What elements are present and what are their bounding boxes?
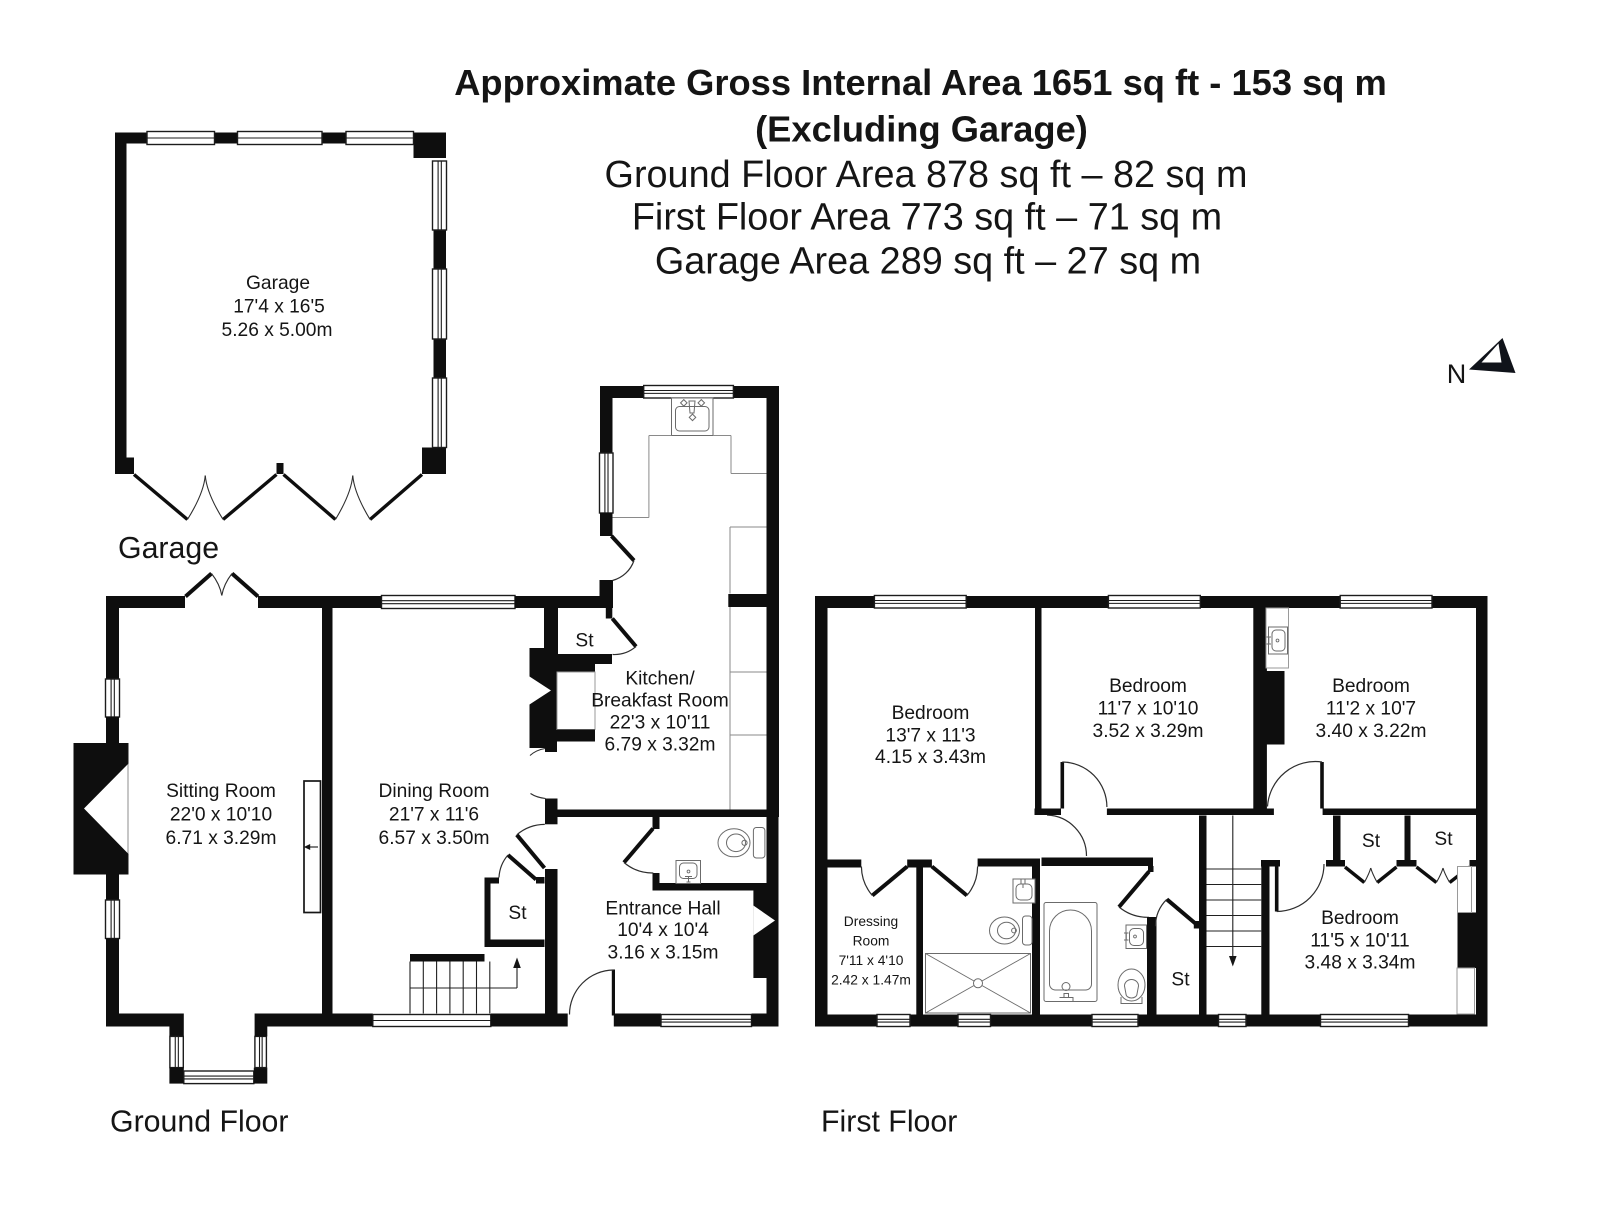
svg-text:Dressing: Dressing: [844, 914, 898, 929]
svg-text:Garage Area 289 sq ft – 27 sq: Garage Area 289 sq ft – 27 sq m: [655, 241, 1201, 283]
svg-text:First Floor Area 773 sq ft – 7: First Floor Area 773 sq ft – 71 sq m: [632, 197, 1222, 239]
svg-text:6.57 x 3.50m: 6.57 x 3.50m: [379, 828, 490, 849]
svg-text:7'11 x 4'10: 7'11 x 4'10: [839, 953, 904, 968]
svg-text:3.16 x 3.15m: 3.16 x 3.15m: [608, 943, 719, 964]
svg-text:St: St: [575, 631, 594, 652]
svg-text:22'3 x 10'11: 22'3 x 10'11: [610, 713, 711, 734]
svg-text:Approximate Gross Internal Are: Approximate Gross Internal Area 1651 sq …: [454, 62, 1387, 103]
svg-text:11'7 x 10'10: 11'7 x 10'10: [1098, 699, 1199, 720]
svg-text:First Floor: First Floor: [821, 1106, 957, 1139]
svg-text:Kitchen/: Kitchen/: [625, 669, 695, 690]
svg-text:2.42 x 1.47m: 2.42 x 1.47m: [831, 973, 911, 988]
svg-text:Room: Room: [853, 934, 890, 949]
svg-text:Ground Floor: Ground Floor: [110, 1106, 289, 1139]
svg-text:St: St: [1362, 831, 1381, 852]
svg-text:Dining Room: Dining Room: [379, 781, 490, 802]
svg-text:13'7 x 11'3: 13'7 x 11'3: [885, 726, 975, 747]
svg-text:Garage: Garage: [246, 273, 310, 294]
svg-text:6.79 x 3.32m: 6.79 x 3.32m: [605, 735, 716, 756]
svg-text:3.40 x 3.22m: 3.40 x 3.22m: [1316, 721, 1427, 742]
svg-text:4.15 x 3.43m: 4.15 x 3.43m: [875, 747, 986, 768]
svg-text:Garage: Garage: [118, 532, 219, 565]
svg-text:3.48 x 3.34m: 3.48 x 3.34m: [1305, 952, 1416, 973]
svg-text:Bedroom: Bedroom: [1332, 676, 1410, 697]
svg-text:Bedroom: Bedroom: [1321, 908, 1399, 929]
svg-text:Bedroom: Bedroom: [1109, 676, 1187, 697]
svg-text:10'4 x 10'4: 10'4 x 10'4: [617, 920, 709, 941]
svg-text:6.71 x 3.29m: 6.71 x 3.29m: [166, 828, 277, 849]
svg-text:St: St: [508, 903, 527, 924]
svg-text:5.26 x 5.00m: 5.26 x 5.00m: [222, 320, 333, 341]
svg-text:11'5 x 10'11: 11'5 x 10'11: [1310, 930, 1409, 951]
svg-text:Bedroom: Bedroom: [892, 703, 970, 724]
svg-text:St: St: [1171, 970, 1190, 991]
svg-text:St: St: [1434, 829, 1453, 850]
svg-text:Sitting Room: Sitting Room: [166, 781, 276, 802]
svg-text:11'2 x 10'7: 11'2 x 10'7: [1326, 699, 1416, 720]
svg-text:21'7 x 11'6: 21'7 x 11'6: [389, 805, 479, 826]
svg-text:N: N: [1447, 359, 1467, 389]
svg-text:17'4 x 16'5: 17'4 x 16'5: [233, 297, 325, 318]
svg-text:Breakfast Room: Breakfast Room: [591, 691, 729, 712]
svg-text:Ground Floor Area 878 sq ft –: Ground Floor Area 878 sq ft – 82 sq m: [605, 154, 1248, 196]
svg-text:Entrance Hall: Entrance Hall: [605, 899, 720, 920]
svg-text:22'0 x 10'10: 22'0 x 10'10: [170, 805, 272, 826]
svg-text:3.52 x 3.29m: 3.52 x 3.29m: [1093, 721, 1204, 742]
svg-text:(Excluding Garage): (Excluding Garage): [755, 109, 1088, 150]
